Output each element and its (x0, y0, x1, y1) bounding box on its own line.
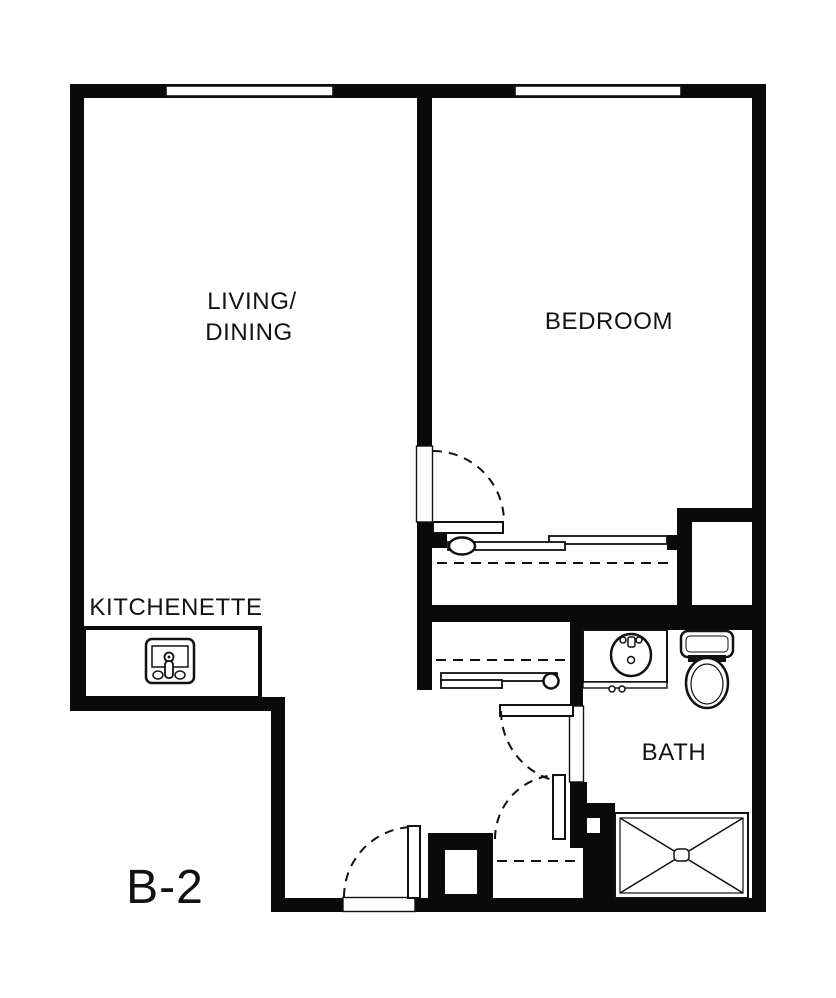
bath-door (500, 705, 573, 783)
hall-closet-door (495, 775, 565, 839)
wall-bottom-left (271, 898, 343, 912)
slider-handle (449, 538, 475, 555)
bath-doorway (570, 706, 584, 782)
living-dining-label-line2: DINING (205, 321, 293, 345)
bedroom-label: BEDROOM (545, 310, 673, 334)
bath-door-arc (501, 711, 573, 783)
wall-left (70, 84, 84, 711)
wall-shower-left (600, 803, 615, 898)
slider-end-right (667, 535, 680, 550)
wall-hall-bath-upper (570, 622, 583, 706)
bedroom-door-arc (433, 451, 504, 522)
kitchen-sink-icon (146, 639, 194, 683)
slider-handle (544, 674, 559, 689)
slider-end-left (417, 533, 447, 548)
bath-vanity (583, 630, 667, 692)
bedroom-closet-slider-right (549, 536, 667, 544)
living-dining-label-line1: LIVING/ (207, 290, 297, 314)
entry-door (344, 826, 420, 898)
window-bedroom (515, 86, 681, 96)
shower-icon (615, 813, 748, 898)
entry-doorway (343, 898, 415, 912)
chase-column (428, 833, 493, 898)
wall-entry-closet-right (583, 833, 600, 898)
kitchenette-label: KITCHENETTE (89, 596, 262, 620)
shower-drain (674, 849, 689, 861)
bedroom-closet (437, 536, 673, 563)
entry-door-arc (344, 827, 414, 897)
bedroom-door (433, 451, 504, 533)
bath-sink-icon (611, 634, 651, 676)
kitchenette-counter (84, 628, 260, 698)
unit-label: B-2 (126, 864, 204, 912)
wall-nook-left (677, 508, 692, 608)
floor-plan-drawing (0, 0, 836, 998)
bath-label: BATH (642, 741, 707, 765)
floor-plan: LIVING/ DINING BEDROOM KITCHENETTE BATH … (0, 0, 836, 998)
wall-lower-left-vertical (271, 697, 285, 912)
wall-right (752, 84, 766, 912)
window-living (166, 86, 333, 96)
wall-bath-top (570, 605, 766, 630)
hall-closet (436, 660, 567, 689)
hall-closet-slider-b (441, 680, 502, 688)
wall-bottom-right (415, 898, 766, 912)
bedroom-doorway (417, 446, 433, 522)
hall-closet-door-arc (495, 775, 559, 839)
toilet-icon (681, 631, 733, 708)
wall-divider-upper (417, 98, 432, 446)
